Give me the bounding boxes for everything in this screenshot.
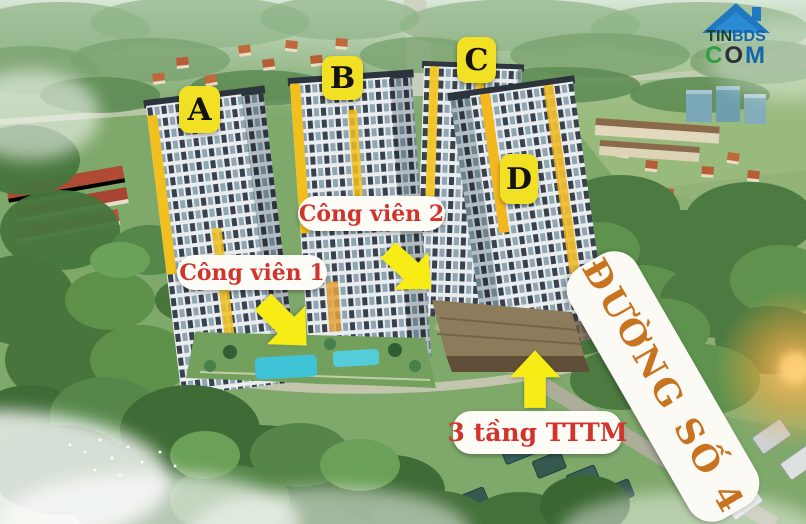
callout-cong-vien-1: Công viên 1 [177, 255, 327, 290]
callout-cong-vien-2: Công viên 2 [298, 196, 445, 231]
tower-label-c: C [457, 37, 496, 83]
mall-arrow-icon [508, 350, 562, 410]
tower-label-a: A [179, 86, 220, 133]
callout-3-tang-tttm: 3 tầng TTTM [453, 411, 622, 454]
tower-label-d: D [500, 154, 538, 204]
aerial-render: A B C D Công viên 2 Công viên 1 3 tầng T… [0, 0, 806, 524]
tower-label-b: B [322, 56, 363, 100]
logo-text-com: COM [696, 44, 776, 68]
tinbds-logo: TINBDS COM [696, 3, 776, 69]
